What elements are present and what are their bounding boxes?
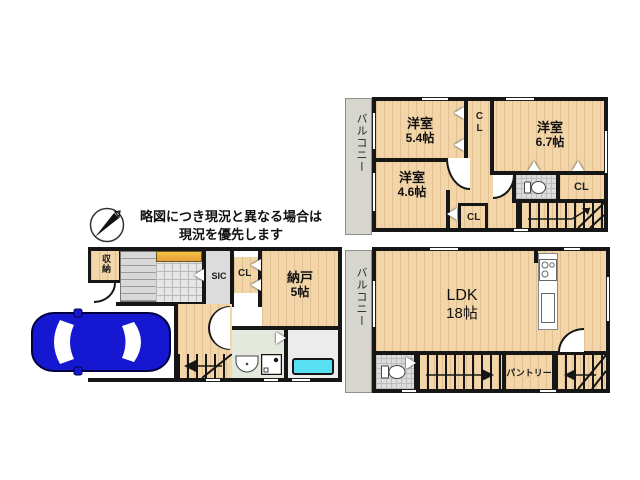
floorplan-page: { "note": { "line1": "略図につき現況と異なる場合は", "… [0,0,640,480]
nando-label: 納戸 5帖 [268,271,332,300]
bathtub [292,358,334,375]
washing-machine-icon [261,354,282,375]
closet-bottom: CL [458,203,488,228]
toilet-icon [524,180,548,195]
ldk-staircase-left [418,355,502,389]
door-arc [446,158,470,190]
nando-size: 5帖 [268,286,332,300]
ldk-name: LDK [416,287,508,305]
room-west-5-4: 洋室 5.4帖 [384,117,456,146]
window [372,113,376,149]
window [506,97,534,101]
pantry-label: パントリー [506,366,552,379]
room-east-size: 6.7帖 [504,136,596,150]
upper-staircase [520,203,604,228]
closet-door-icon [251,259,261,271]
disclaimer-line2: 現況を優先します [128,226,334,244]
upper-balcony-label: バルコニー [353,113,369,173]
closet-right-label: CL [574,181,589,193]
wall [490,101,494,175]
storage-closet: 収納 [88,251,122,283]
upper-toilet-room [516,175,556,199]
room-east-6-7: 洋室 6.7帖 [504,121,596,150]
window [206,378,220,382]
window [514,228,528,232]
ldk-staircase-right [556,355,606,389]
room-west-size: 5.4帖 [384,132,456,146]
room-south-size: 4.6帖 [378,186,446,200]
upper-balcony: バルコニー [345,98,372,235]
window [604,131,608,173]
disclaimer-line1: 略図につき現況と異なる場合は [128,208,334,226]
first-closet-label: CL [238,268,251,279]
ldk-balcony-label: バルコニー [353,267,369,327]
closet-door-icon [251,279,261,291]
stove-icon [539,259,557,281]
car-icon [30,307,172,377]
window [264,378,278,382]
disclaimer-note: 略図につき現況と異なる場合は 現況を優先します [128,208,334,244]
door-arc [94,283,116,303]
closet-right: CL [560,175,604,199]
storage-label: 収納 [100,254,113,274]
closet-bottom-label: CL [467,212,480,223]
closet-top-label: CL [474,111,485,135]
washbasin-icon [235,355,259,374]
porch-strip [156,251,202,262]
door-icon [406,357,416,369]
window [402,389,416,393]
window [292,378,310,382]
window [422,97,448,101]
room-south-4-6: 洋室 4.6帖 [378,171,446,200]
closet-door-icon [528,161,540,171]
door-arc [558,328,584,352]
ldk-plan: LDK 18帖 パントリー [372,247,610,393]
shoe-closet: SIC [206,251,230,304]
room-west-name: 洋室 [384,117,456,132]
entrance-steps [120,251,158,302]
wall [338,251,342,382]
window [606,277,610,321]
door-icon [194,269,204,281]
closet-top: CL [468,103,490,159]
ldk-room: LDK 18帖 [416,287,508,323]
upper-plan: 洋室 5.4帖 洋室 6.7帖 洋室 4.6帖 CL CL CL [372,97,608,232]
window [540,389,556,393]
bathroom [288,330,338,378]
room-south-name: 洋室 [378,171,446,186]
closet-door-icon [572,161,584,171]
closet-door-icon [454,107,464,119]
closet-door-icon [454,139,464,151]
window [430,247,458,251]
closet-door-icon [447,208,457,220]
wall [376,158,446,162]
door-icon [276,332,286,344]
first-staircase [178,354,232,378]
nando-room: 納戸 5帖 [262,251,338,326]
window [372,281,376,327]
window [372,173,376,211]
ldk-balcony: バルコニー [345,250,372,393]
north-compass-icon [88,206,126,244]
room-east-name: 洋室 [504,121,596,136]
wall [534,251,538,263]
ldk-size: 18帖 [416,305,508,322]
pantry: パントリー [506,355,552,389]
window [564,247,580,251]
shoe-closet-label: SIC [208,271,230,281]
nando-name: 納戸 [268,271,332,286]
kitchen-sink-icon [541,293,555,323]
toilet-icon [381,364,407,380]
